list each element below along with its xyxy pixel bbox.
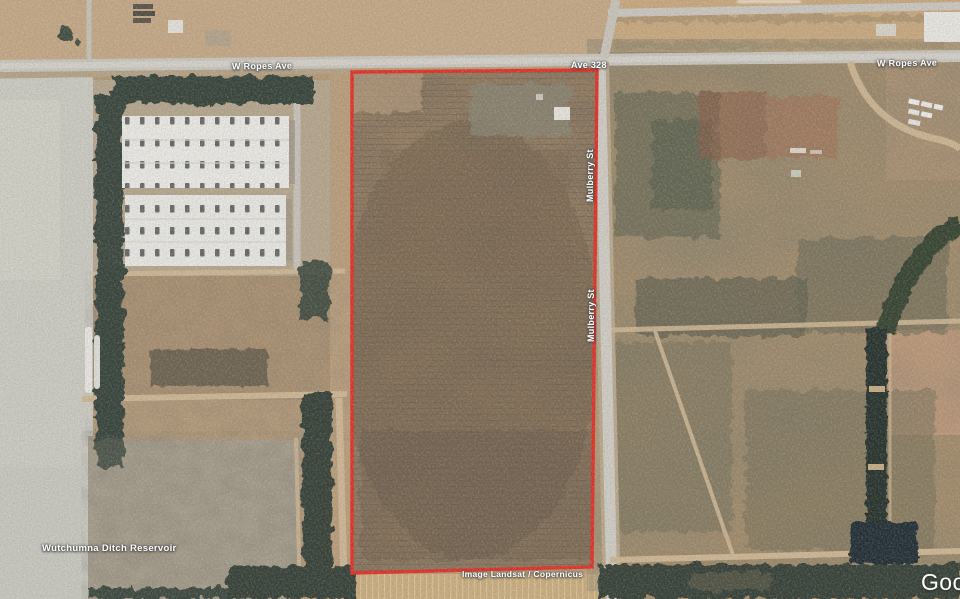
- road-label-mulberry-lower: Mulberry St: [586, 289, 596, 342]
- satellite-canvas[interactable]: [0, 0, 960, 599]
- road-label-ave-328: Ave 328: [571, 60, 607, 70]
- road-label-ropes-left: W Ropes Ave: [232, 61, 292, 72]
- map-viewport[interactable]: W Ropes Ave Ave 328 W Ropes Ave Mulberry…: [0, 0, 960, 599]
- imagery-attribution: Image Landsat / Copernicus: [462, 569, 583, 579]
- road-label-ropes-right: W Ropes Ave: [877, 58, 937, 69]
- clipped-road-label: [737, 0, 801, 3]
- google-logo[interactable]: Google: [921, 569, 960, 596]
- place-label-reservoir: Wutchumna Ditch Reservoir: [42, 543, 177, 554]
- road-label-mulberry-upper: Mulberry St: [585, 149, 595, 202]
